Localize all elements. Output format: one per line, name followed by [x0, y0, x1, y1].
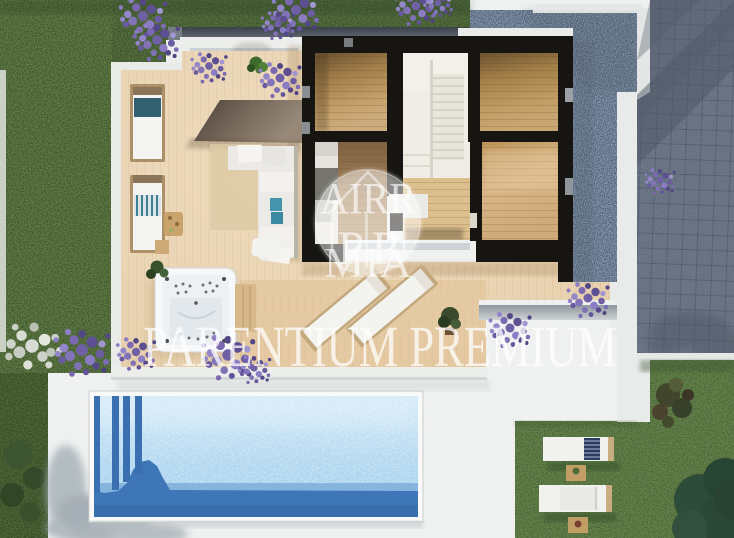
svg-text:PARENTIUM PREMIUM: PARENTIUM PREMIUM: [143, 314, 617, 379]
svg-text:P: P: [338, 222, 365, 275]
svg-text:P: P: [372, 222, 399, 275]
svg-text:AIRR: AIRR: [320, 174, 417, 223]
